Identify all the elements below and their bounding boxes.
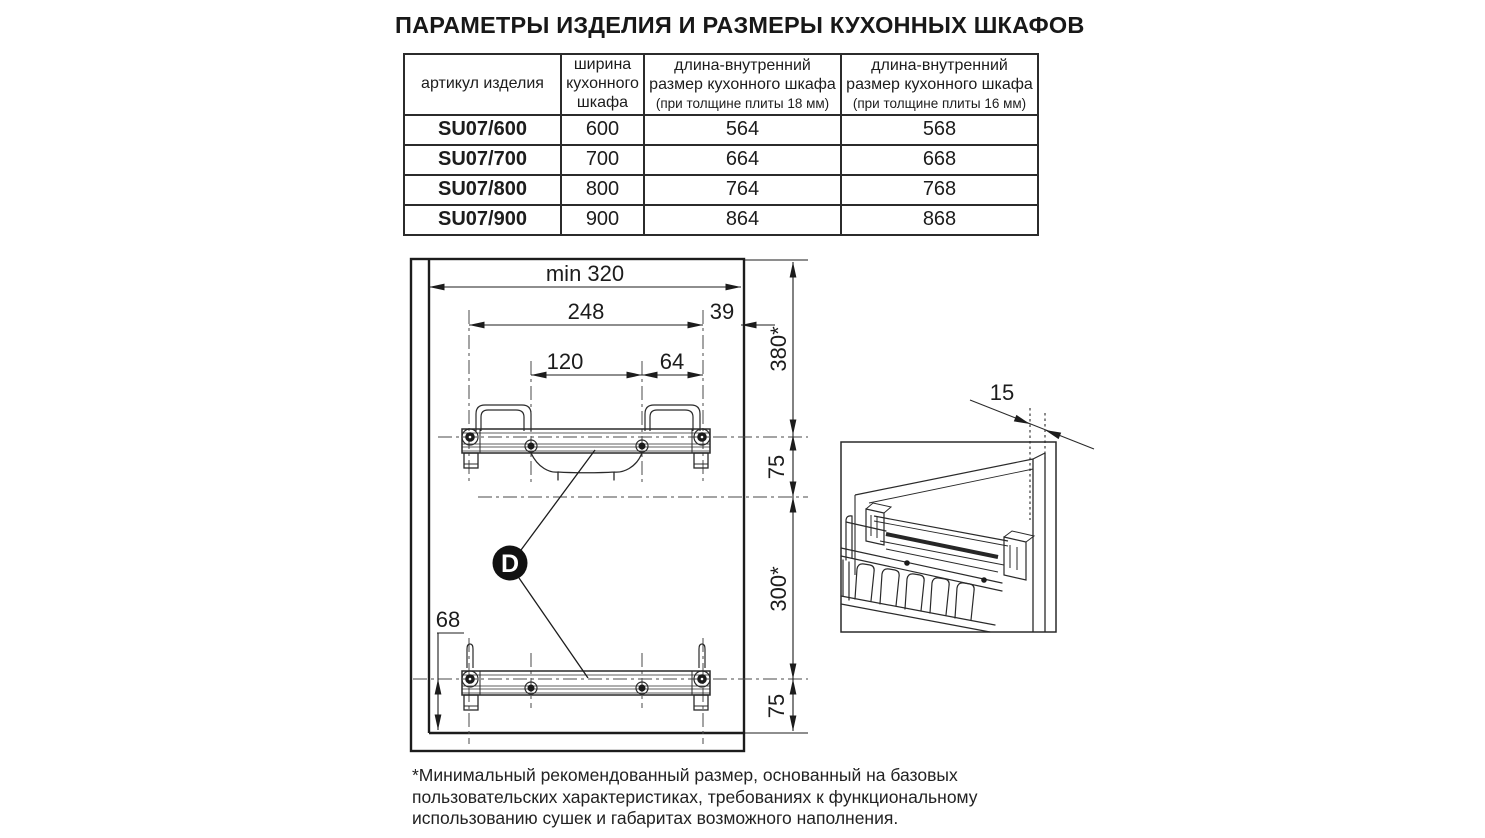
dim-min-width-label: min 320 [546,261,624,286]
detail-dim-15-label: 15 [990,380,1014,405]
top-rail [462,405,710,480]
col-header-len16: длина-внутренний размер кухонного шкафа … [841,54,1038,115]
footnote: *Минимальный рекомендованный размер, осн… [412,765,1072,830]
cell-article: SU07/800 [404,175,561,205]
dim-39-label: 39 [710,299,734,324]
col-header-width: ширина кухонного шкафа [561,54,644,115]
col-header-article: артикул изделия [404,54,561,115]
cell-width: 900 [561,205,644,235]
cell-width: 700 [561,145,644,175]
dim-68-label: 68 [436,607,460,632]
col-header-len16-main: длина-внутренний размер кухонного шкафа [846,57,1033,93]
cell-len18: 764 [644,175,841,205]
cell-len18: 664 [644,145,841,175]
detail-marker-d: D [493,450,596,678]
cell-len18: 864 [644,205,841,235]
dim-120-label: 120 [547,349,584,374]
spec-table: артикул изделия ширина кухонного шкафа д… [403,53,1039,236]
dim-380-label: 380* [766,326,791,372]
cell-article: SU07/900 [404,205,561,235]
dim-75-top-label: 75 [764,455,789,479]
cell-len16: 668 [841,145,1038,175]
marker-d-label: D [501,550,519,578]
col-header-len18: длина-внутренний размер кухонного шкафа … [644,54,841,115]
dim-64-label: 64 [660,349,684,374]
cell-width: 600 [561,115,644,145]
table-row: SU07/700 700 664 668 [404,145,1038,175]
table-row: SU07/900 900 864 868 [404,205,1038,235]
dim-248-label: 248 [568,299,605,324]
cell-width: 800 [561,175,644,205]
cell-len16: 768 [841,175,1038,205]
dim-75-bottom-label: 75 [764,694,789,718]
table-row: SU07/800 800 764 768 [404,175,1038,205]
cell-len16: 568 [841,115,1038,145]
col-header-len18-main: длина-внутренний размер кухонного шкафа [649,57,836,93]
dim-300-label: 300* [766,566,791,612]
page-title: ПАРАМЕТРЫ ИЗДЕЛИЯ И РАЗМЕРЫ КУХОННЫХ ШКА… [395,12,1045,39]
cell-article: SU07/700 [404,145,561,175]
bottom-rail [462,644,710,710]
page: ПАРАМЕТРЫ ИЗДЕЛИЯ И РАЗМЕРЫ КУХОННЫХ ШКА… [0,0,1485,838]
technical-drawing: min 320 248 39 120 64 68 380* 75 300* 75 [395,245,1110,770]
table-header-row: артикул изделия ширина кухонного шкафа д… [404,54,1038,115]
detail-view [841,400,1094,632]
dish-rack [841,516,1002,632]
col-header-len18-sub: (при толщине плиты 18 мм) [647,96,838,112]
cell-len16: 868 [841,205,1038,235]
col-header-len16-sub: (при толщине плиты 16 мм) [844,96,1035,112]
cell-article: SU07/600 [404,115,561,145]
table-row: SU07/600 600 564 568 [404,115,1038,145]
cell-len18: 564 [644,115,841,145]
